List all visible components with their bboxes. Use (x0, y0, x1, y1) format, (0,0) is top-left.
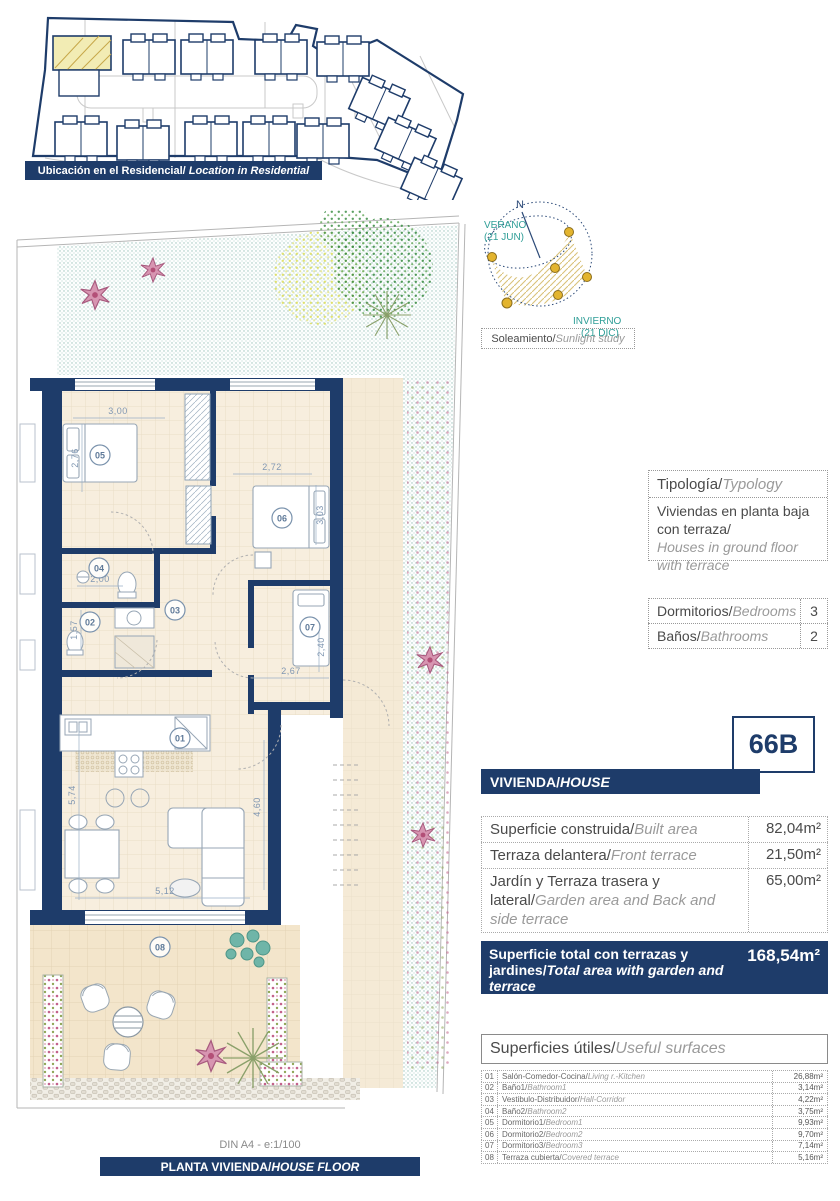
location-banner-es: Ubicación en el Residencial/ (38, 165, 186, 177)
built-area-row: Superficie construida/Built area 82,04m² (481, 816, 828, 842)
garden-flower-trail (407, 380, 449, 1070)
garden-area-value: 65,00m² (748, 869, 827, 932)
useful-surfaces-header: Superficies útiles/Useful surfaces (481, 1034, 828, 1064)
planter-left (43, 975, 63, 1087)
total-value: 168,54m² (747, 946, 820, 966)
table-row: 02Baño1/Bathroom13,14m² (481, 1082, 828, 1094)
typology-body-en: Houses in ground floor with terrace (657, 538, 819, 574)
dimension-label: 2,67 (281, 666, 301, 676)
built-area-label-es: Superficie construida/ (490, 821, 634, 838)
room-label-08: 08 (150, 937, 170, 957)
floor-banner-en: HOUSE FLOOR (271, 1160, 359, 1174)
typology-title-es: Tipología/ (657, 476, 722, 493)
svg-text:08: 08 (155, 943, 165, 953)
bedrooms-label-es: Dormitorios/ (657, 603, 732, 619)
svg-text:06: 06 (277, 514, 287, 524)
built-area-label-en: Built area (634, 821, 697, 838)
dimension-label: 4,60 (252, 797, 262, 817)
total-area-banner: Superficie total con terrazas y jardines… (481, 941, 828, 994)
sun-hatch-band (491, 233, 587, 306)
stone-walkway (30, 1078, 360, 1100)
bathrooms-row: Baños/Bathrooms 2 (648, 623, 828, 649)
location-banner-en: Location in Residential (189, 165, 309, 177)
table-row: 06Dormitorio2/Bedroom29,70m² (481, 1128, 828, 1140)
hob (115, 751, 143, 777)
sun-study-diagram: N VERANO (21 JUN) INVIERNO (21 DIC) (478, 196, 643, 348)
sun-caption-es: Soleamiento/ (491, 333, 555, 345)
bedrooms-value: 3 (800, 599, 827, 623)
bathrooms-label-en: Bathrooms (701, 628, 769, 644)
svg-text:01: 01 (175, 734, 185, 744)
rooms-count-table: Dormitorios/Bedrooms 3 Baños/Bathrooms 2 (648, 598, 828, 649)
typology-body: Viviendas en planta baja con terraza/ Ho… (649, 498, 827, 578)
typology-title-en: Typology (722, 476, 782, 493)
dimension-label: 2,76 (70, 448, 80, 468)
dimension-label: 2,72 (262, 462, 282, 472)
typology-panel: Tipología/Typology Viviendas en planta b… (648, 470, 828, 561)
room-label-05: 05 (90, 445, 110, 465)
bedrooms-row: Dormitorios/Bedrooms 3 (648, 598, 828, 623)
dimension-label: 5,74 (67, 785, 77, 805)
table-row: 01Salón-Comedor-Cocina/Living r.-Kitchen… (481, 1070, 828, 1082)
dimension-label: 3,03 (315, 505, 325, 525)
svg-text:02: 02 (85, 618, 95, 628)
typology-title: Tipología/Typology (649, 471, 827, 498)
sun-study-caption: Soleamiento/Sunlight study (481, 328, 635, 349)
garden-area-row: Jardín y Terraza trasera y lateral/Garde… (481, 868, 828, 933)
svg-text:05: 05 (95, 451, 105, 461)
north-needle (522, 212, 540, 258)
brochure-page: Ubicación en el Residencial/ Location in… (0, 0, 840, 1201)
room-label-03: 03 (165, 600, 185, 620)
typology-body-es: Viviendas en planta baja con terraza/ (657, 503, 809, 537)
dimension-label: 3,00 (108, 406, 128, 416)
dimension-label: 2,40 (316, 637, 326, 657)
useful-header-en: Useful surfaces (615, 1040, 725, 1058)
room-label-01: 01 (170, 728, 190, 748)
house-banner-es: VIVIENDA/ (490, 774, 560, 790)
bedrooms-label-en: Bedrooms (732, 603, 796, 619)
built-area-value: 82,04m² (748, 817, 827, 842)
site-highlighted-unit (53, 36, 111, 96)
table-row: 07Dormitorio3/Bedroom37,14m² (481, 1140, 828, 1152)
scale-note: DIN A4 - e:1/100 (100, 1139, 420, 1151)
svg-text:04: 04 (94, 564, 104, 574)
svg-text:03: 03 (170, 606, 180, 616)
winter-label-1: INVIERNO (573, 316, 622, 327)
house-banner: VIVIENDA/HOUSE (481, 769, 760, 794)
room-label-02: 02 (80, 612, 100, 632)
room-label-06: 06 (272, 508, 292, 528)
floor-plan-drawing: 3,00 2,76 2,72 3,03 2,00 1,57 2,67 2,40 … (15, 210, 470, 1135)
dimension-label: 5,12 (155, 886, 175, 896)
table-row: 08Terraza cubierta/Covered terrace5,16m² (481, 1151, 828, 1164)
summer-label-2: (21 JUN) (484, 232, 524, 243)
front-terrace-row: Terraza delantera/Front terrace 21,50m² (481, 842, 828, 868)
summer-label-1: VERANO (484, 220, 526, 231)
front-terrace-label-en: Front terrace (611, 847, 697, 864)
floor-banner-es: PLANTA VIVIENDA/ (161, 1160, 272, 1174)
neighbour-unit-slice (18, 378, 42, 925)
wardrobes (185, 394, 211, 544)
house-banner-en: HOUSE (560, 774, 610, 790)
room-label-04: 04 (89, 558, 109, 578)
bathrooms-value: 2 (800, 624, 827, 648)
table-row: 03Vestibulo-Distribuidor/Hall-Corridor4,… (481, 1093, 828, 1105)
floor-banner: PLANTA VIVIENDA/HOUSE FLOOR (100, 1157, 420, 1176)
north-label: N (516, 199, 524, 211)
areas-table: Superficie construida/Built area 82,04m²… (481, 816, 828, 933)
location-banner: Ubicación en el Residencial/ Location in… (25, 161, 322, 180)
table-row: 04Baño2/Bathroom23,75m² (481, 1105, 828, 1117)
front-terrace-label-es: Terraza delantera/ (490, 847, 611, 864)
svg-text:07: 07 (305, 623, 315, 633)
unit-code: 66B (749, 729, 799, 760)
sun-caption-en: Sunlight study (556, 333, 625, 345)
bathrooms-label-es: Baños/ (657, 628, 701, 644)
unit-code-badge: 66B (732, 716, 815, 773)
table-row: 05Dormitorio1/Bedroom19,93m² (481, 1116, 828, 1128)
room-label-07: 07 (300, 617, 320, 637)
useful-header-es: Superficies útiles/ (490, 1040, 615, 1058)
dimension-label: 1,57 (69, 620, 79, 640)
front-terrace-value: 21,50m² (748, 843, 827, 868)
useful-surfaces-table: 01Salón-Comedor-Cocina/Living r.-Kitchen… (481, 1070, 828, 1164)
